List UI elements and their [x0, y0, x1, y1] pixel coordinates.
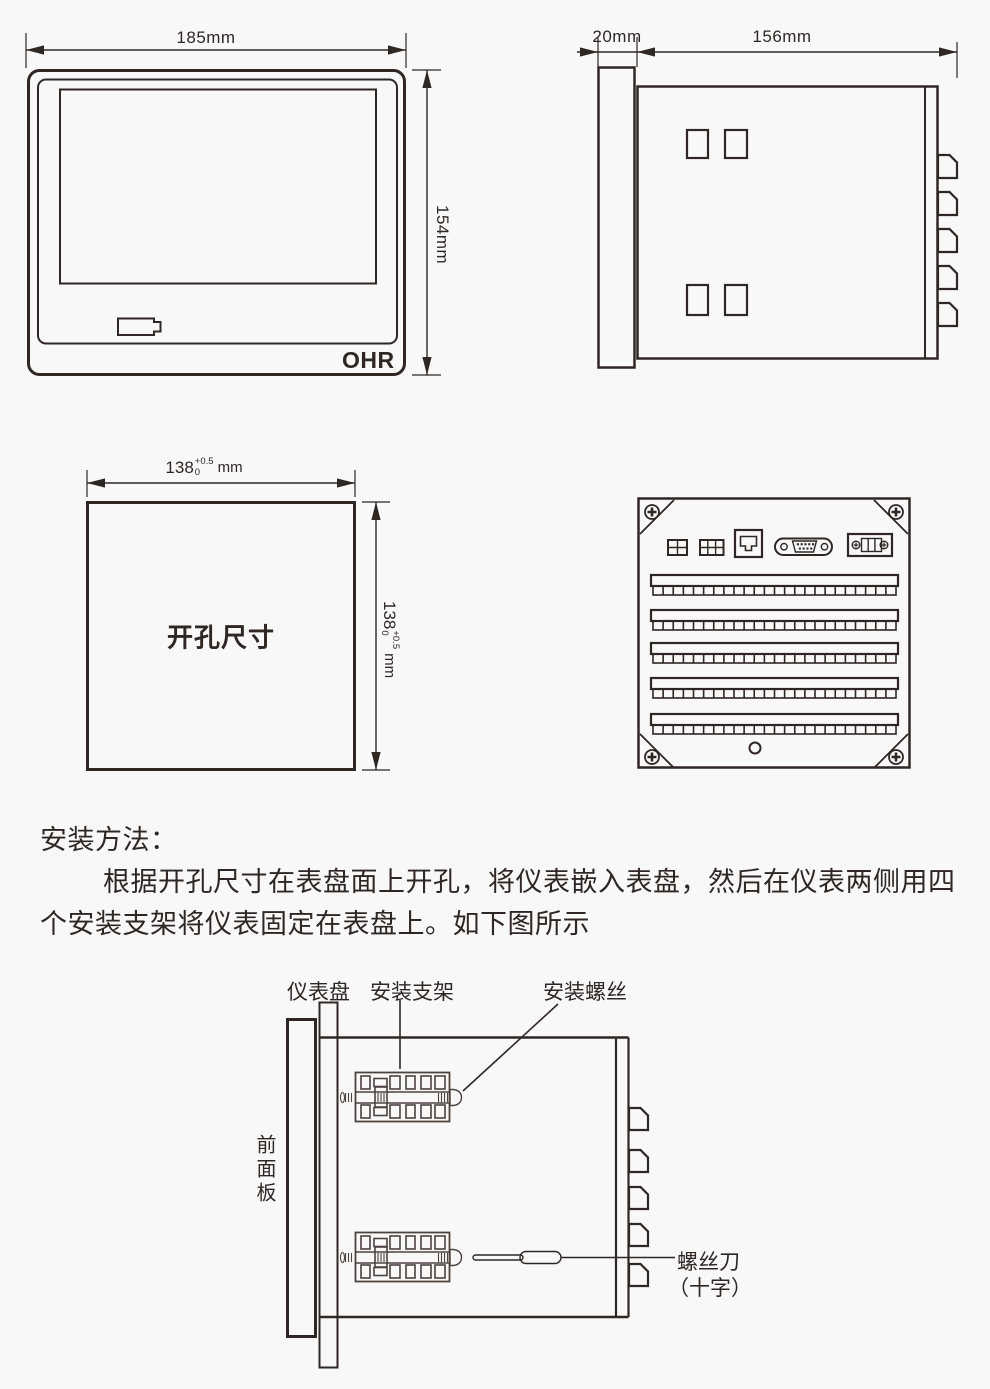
- panel-label: 仪表盘: [287, 976, 350, 1006]
- panel-wall-hatch: [320, 1003, 338, 1368]
- cutout-title: 开孔尺寸: [167, 618, 275, 655]
- screw-leader-line: [463, 1004, 558, 1091]
- side-bezel: [599, 68, 635, 368]
- install-method-line2: 个安装支架将仪表固定在表盘上。如下图所示: [40, 902, 590, 941]
- page: 185mm 154mm OHR 20mm 156mm 138 +0.50 mm …: [0, 0, 990, 1389]
- db9-port-icon: [775, 539, 832, 556]
- installation-drawing: [288, 1000, 676, 1368]
- front-screen: [60, 90, 376, 284]
- screwdriver-type-label: （十字）: [668, 1272, 752, 1302]
- corner-screw-icon: [889, 750, 903, 764]
- connector-row: [668, 530, 892, 557]
- front-panel-label: 前面板: [250, 1134, 279, 1206]
- front-height-label: 154mm: [432, 205, 452, 264]
- terminal-tab: [938, 192, 957, 215]
- rear-view-drawing: [639, 499, 910, 769]
- corner-screw-icon: [889, 505, 903, 519]
- brand-logo: OHR: [342, 347, 395, 374]
- terminal-strips: [651, 575, 898, 734]
- terminal-strip: [651, 643, 898, 663]
- side-depth-label: 20mm: [592, 27, 641, 47]
- terminal-tab: [629, 1224, 648, 1246]
- terminal-tab: [938, 303, 957, 326]
- side-body: [638, 87, 938, 359]
- instrument-body-outline: [319, 1038, 629, 1318]
- screwdriver-icon: [473, 1252, 561, 1264]
- terminal-strip: [651, 575, 898, 595]
- cutout-height-label: 138 +0.50 mm: [380, 601, 400, 678]
- terminal-connector-large: [700, 540, 724, 555]
- terminal-tab: [629, 1187, 648, 1209]
- corner-screw-icon: [645, 750, 659, 764]
- front-bezel: [38, 80, 397, 344]
- side-terminal-tabs: [938, 155, 957, 326]
- front-panel-side: [288, 1020, 316, 1337]
- terminal-connector-small: [668, 540, 687, 555]
- cutout-width-label: 138 +0.50 mm: [165, 457, 242, 477]
- front-view-drawing: [26, 33, 441, 375]
- grounding-hole: [750, 743, 761, 754]
- bracket-label: 安装支架: [370, 976, 454, 1006]
- terminal-strip: [651, 610, 898, 630]
- vent-slot: [687, 130, 708, 158]
- install-method-line1: 根据开孔尺寸在表盘面上开孔，将仪表嵌入表盘，然后在仪表两侧用四: [103, 860, 956, 899]
- install-terminal-tabs: [629, 1108, 648, 1286]
- terminal-tab: [629, 1108, 648, 1130]
- vent-slot: [725, 130, 747, 158]
- rj45-port-icon: [735, 530, 762, 557]
- vent-slot: [725, 285, 747, 315]
- mounting-bracket-bottom: [341, 1233, 462, 1282]
- terminal-tab: [938, 229, 957, 252]
- usb-slot-icon: [118, 319, 161, 336]
- side-view-drawing: [577, 37, 957, 368]
- terminal-tab: [938, 155, 957, 178]
- terminal-tab: [629, 1150, 648, 1172]
- vent-slot: [687, 285, 708, 315]
- power-terminal-icon: [848, 534, 892, 556]
- side-length-label: 156mm: [752, 27, 811, 47]
- terminal-tab: [938, 266, 957, 289]
- technical-drawing: [0, 0, 990, 1389]
- front-outer-case: [29, 71, 405, 375]
- terminal-strip: [651, 678, 898, 698]
- mounting-bracket-top: [341, 1073, 462, 1122]
- terminal-strip: [651, 714, 898, 734]
- terminal-tab: [629, 1264, 648, 1286]
- install-method-heading: 安装方法：: [40, 818, 178, 857]
- corner-screw-icon: [645, 505, 659, 519]
- screw-label: 安装螺丝: [543, 976, 627, 1006]
- front-width-label: 185mm: [176, 28, 235, 48]
